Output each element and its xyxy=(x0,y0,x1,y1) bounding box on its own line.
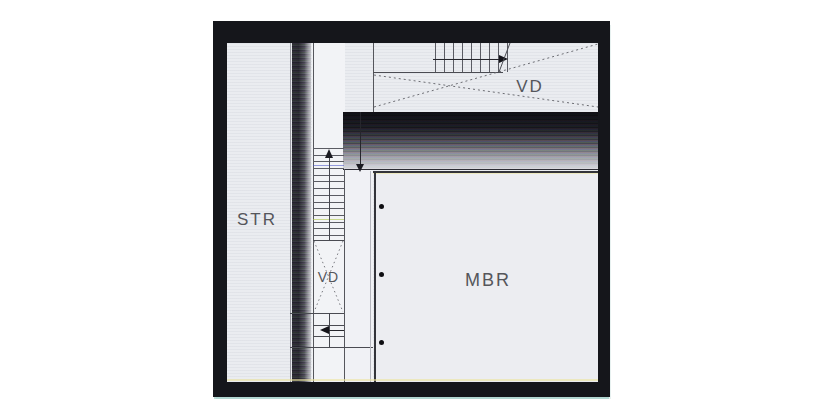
column-dot xyxy=(379,340,384,345)
room-vd-upper-label: VD xyxy=(510,78,550,95)
scan-yellow-edge xyxy=(227,379,598,381)
plan-border-frame: STR VD VD MBR xyxy=(213,21,610,397)
room-mbr-label: MBR xyxy=(453,271,523,289)
void-upper-cross-line xyxy=(374,44,598,107)
void-upper-cross-line xyxy=(374,75,598,107)
floor-plan: STR VD VD MBR xyxy=(227,43,598,382)
column-dot xyxy=(379,204,384,209)
column-dot xyxy=(379,272,384,277)
room-str-label: STR xyxy=(232,211,282,228)
stair-cut-line xyxy=(499,43,510,72)
room-vd-lower-label: VD xyxy=(313,270,344,284)
